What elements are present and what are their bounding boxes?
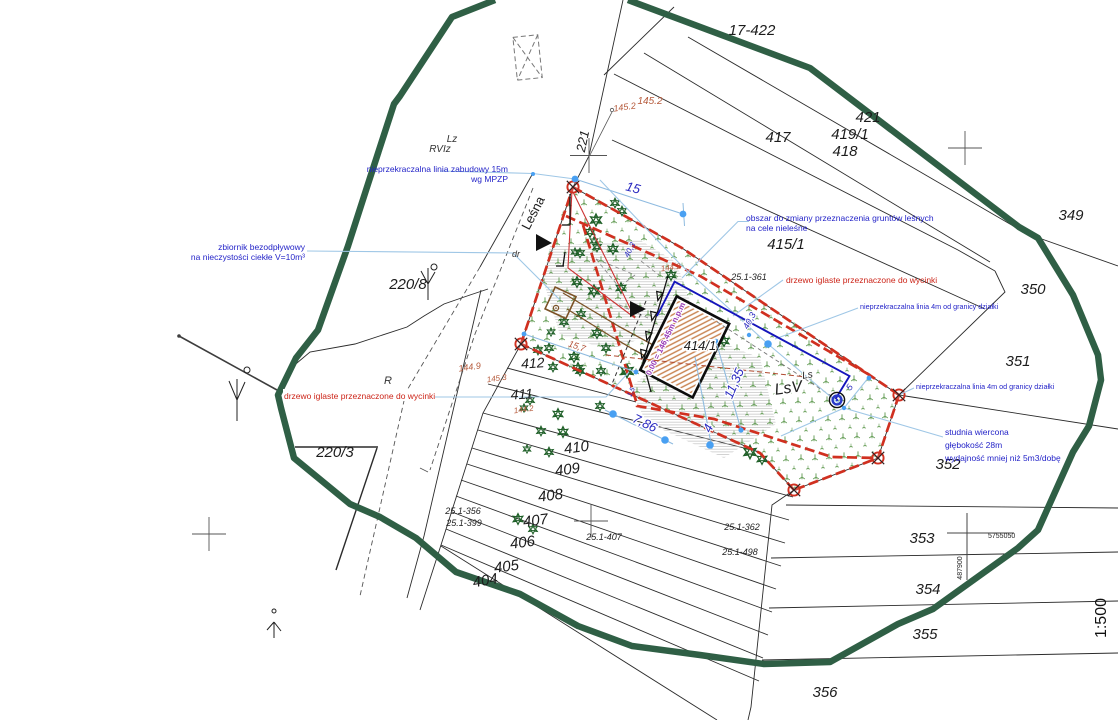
svg-text:wydajność mniej niż 5m3/dobę: wydajność mniej niż 5m3/dobę <box>944 453 1061 463</box>
svg-text:412: 412 <box>521 354 545 371</box>
svg-text:25.1-399: 25.1-399 <box>445 518 482 528</box>
svg-text:415/1: 415/1 <box>767 236 805 253</box>
svg-text:drzewo iglaste przeznaczone do: drzewo iglaste przeznaczone do wycinki <box>786 275 937 285</box>
svg-text:407: 407 <box>522 511 550 531</box>
svg-text:410: 410 <box>563 438 591 458</box>
svg-text:zbiornik bezodpływowy: zbiornik bezodpływowy <box>218 242 306 252</box>
svg-text:418: 418 <box>832 143 858 160</box>
svg-text:355: 355 <box>912 626 938 643</box>
svg-text:25.1-407: 25.1-407 <box>585 532 623 542</box>
svg-text:417: 417 <box>765 129 791 146</box>
svg-text:354: 354 <box>915 581 940 598</box>
svg-text:25.1-362: 25.1-362 <box>723 522 760 532</box>
svg-text:406: 406 <box>509 533 537 553</box>
svg-text:nieprzekraczalna linia 4m od g: nieprzekraczalna linia 4m od granicy dzi… <box>860 302 999 311</box>
svg-text:414/1: 414/1 <box>684 338 717 353</box>
svg-text:220/8: 220/8 <box>388 276 427 293</box>
svg-text:353: 353 <box>909 530 935 547</box>
svg-text:409: 409 <box>554 460 582 480</box>
svg-text:408: 408 <box>537 486 565 506</box>
svg-text:419/1: 419/1 <box>831 126 869 143</box>
svg-text:349: 349 <box>1058 207 1084 224</box>
svg-text:487900: 487900 <box>957 556 964 579</box>
svg-text:R: R <box>384 375 392 387</box>
svg-text:220/3: 220/3 <box>315 444 354 461</box>
svg-text:25.1-356: 25.1-356 <box>444 506 481 516</box>
svg-text:wg MPZP: wg MPZP <box>470 174 508 184</box>
svg-text:25.1-361: 25.1-361 <box>730 272 767 282</box>
svg-text:421: 421 <box>855 109 880 126</box>
svg-text:na nieczystości ciekłe V=10m³: na nieczystości ciekłe V=10m³ <box>191 252 305 262</box>
svg-text:350: 350 <box>1020 281 1046 298</box>
svg-text:nieprzekraczalna linia 4m od g: nieprzekraczalna linia 4m od granicy dzi… <box>916 382 1055 391</box>
svg-text:1:500: 1:500 <box>1093 598 1110 638</box>
svg-text:17-422: 17-422 <box>729 22 776 39</box>
svg-text:na cele nieleśne: na cele nieleśne <box>746 223 808 233</box>
svg-text:dr: dr <box>512 249 521 259</box>
svg-text:5755050: 5755050 <box>988 533 1015 540</box>
svg-text:411: 411 <box>510 385 533 402</box>
svg-text:356: 356 <box>812 684 838 701</box>
svg-text:RVIz: RVIz <box>429 144 451 155</box>
svg-text:nieprzekraczalna linia zabudow: nieprzekraczalna linia zabudowy 15m <box>367 164 508 174</box>
svg-text:drzewo iglaste przeznaczone do: drzewo iglaste przeznaczone do wycinki <box>284 391 435 401</box>
svg-text:351: 351 <box>1005 353 1030 370</box>
svg-text:Ls: Ls <box>801 369 813 382</box>
svg-text:obszar do zmiany przeznaczenia: obszar do zmiany przeznaczenia gruntów l… <box>746 213 934 223</box>
svg-text:145.2: 145.2 <box>637 96 662 107</box>
svg-text:405: 405 <box>493 557 521 577</box>
svg-text:głębokość 28m: głębokość 28m <box>945 440 1002 450</box>
svg-text:studnia wiercona: studnia wiercona <box>945 427 1009 437</box>
svg-text:25.1-498: 25.1-498 <box>721 547 758 557</box>
